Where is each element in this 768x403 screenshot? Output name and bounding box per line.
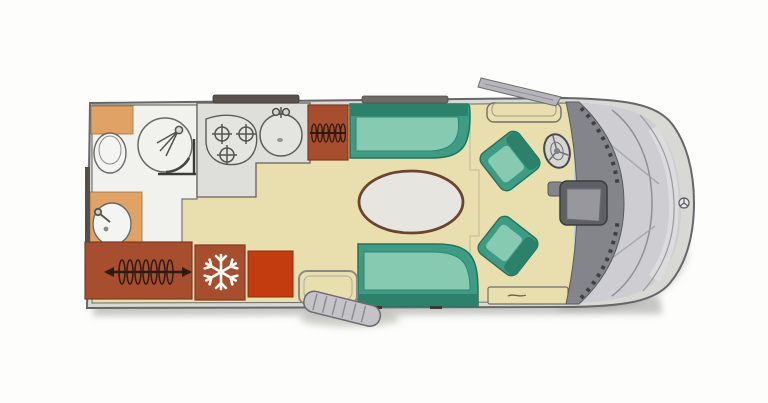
bench-bottom-cushion — [364, 252, 470, 290]
bench-sofa-top — [350, 104, 470, 158]
toilet — [94, 133, 126, 173]
dinette-table — [359, 171, 463, 233]
hangers-icon — [310, 124, 346, 142]
front-wardrobe — [308, 105, 348, 160]
window-bar-rear-wall — [85, 167, 90, 243]
fridge — [195, 245, 245, 300]
motorhome-floorplan — [0, 0, 768, 403]
wash-basin — [93, 203, 131, 245]
window-bar-kitchen — [213, 95, 299, 103]
basin-drain — [104, 227, 109, 232]
oven-unit — [248, 251, 293, 297]
cab-door-recess-bottom — [488, 287, 568, 304]
star-emblem-icon — [679, 198, 689, 208]
cab-door-recess-top — [487, 103, 561, 122]
console-face — [567, 189, 601, 221]
window-bar-dinette — [362, 96, 448, 103]
floorplan-canvas — [0, 0, 768, 403]
sink-drain — [277, 138, 283, 142]
rear-wardrobe — [85, 242, 192, 299]
bench-top-cushion — [356, 117, 459, 151]
wetroom-cabinet-top — [91, 106, 133, 134]
bench-bottom-backrest — [358, 294, 478, 306]
bench-top-backrest — [350, 104, 468, 116]
bench-sofa-bottom — [358, 244, 478, 309]
bench-foot-right — [430, 306, 442, 309]
